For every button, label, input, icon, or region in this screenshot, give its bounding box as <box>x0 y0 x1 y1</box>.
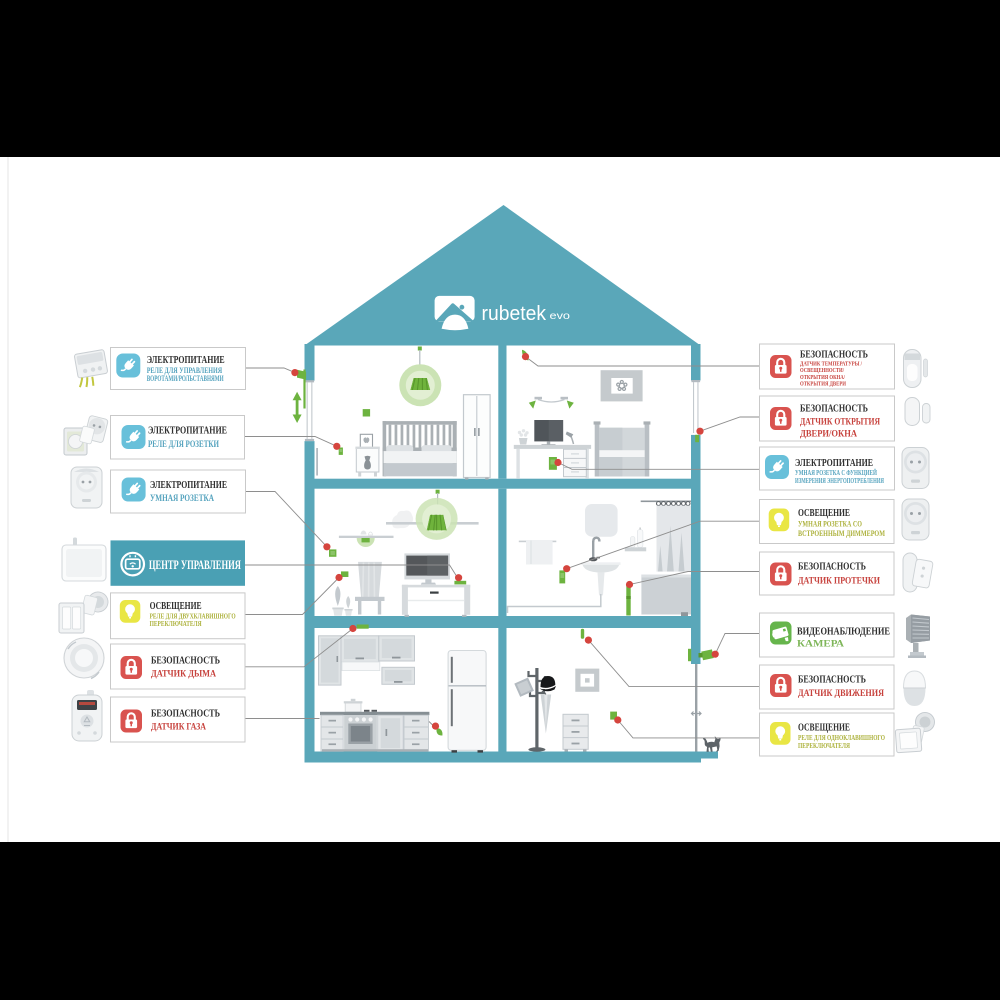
svg-text:rubetek: rubetek <box>482 303 547 325</box>
svg-text:ПЕРЕКЛЮЧАТЕЛЯ: ПЕРЕКЛЮЧАТЕЛЯ <box>798 741 850 750</box>
svg-text:УМНАЯ РОЗЕТКА СО: УМНАЯ РОЗЕТКА СО <box>798 520 862 529</box>
svg-text:БЕЗОПАСНОСТЬ: БЕЗОПАСНОСТЬ <box>798 562 866 573</box>
svg-text:КАМЕРА: КАМЕРА <box>797 639 844 650</box>
svg-text:ОТКРЫТИЯ ДВЕРИ: ОТКРЫТИЯ ДВЕРИ <box>800 381 846 388</box>
svg-text:БЕЗОПАСНОСТЬ: БЕЗОПАСНОСТЬ <box>151 656 220 667</box>
svg-text:ДАТЧИК ГАЗА: ДАТЧИК ГАЗА <box>151 723 206 733</box>
svg-text:ВИДЕОНАБЛЮДЕНИЕ: ВИДЕОНАБЛЮДЕНИЕ <box>797 627 890 638</box>
svg-text:РЕЛЕ ДЛЯ РОЗЕТКИ: РЕЛЕ ДЛЯ РОЗЕТКИ <box>148 440 219 450</box>
svg-text:ИЗМЕРЕНИЯ ЭНЕРГОПОТРЕБЛЕНИЯ: ИЗМЕРЕНИЯ ЭНЕРГОПОТРЕБЛЕНИЯ <box>795 477 884 485</box>
svg-text:ВОРОТАМИ/РОЛЬСТАВНЯМИ: ВОРОТАМИ/РОЛЬСТАВНЯМИ <box>147 374 224 383</box>
svg-text:БЕЗОПАСНОСТЬ: БЕЗОПАСНОСТЬ <box>151 709 220 720</box>
svg-text:ЭЛЕКТРОПИТАНИЕ: ЭЛЕКТРОПИТАНИЕ <box>148 426 227 437</box>
svg-text:БЕЗОПАСНОСТЬ: БЕЗОПАСНОСТЬ <box>800 350 868 361</box>
svg-text:УМНАЯ РОЗЕТКА С ФУНКЦИЕЙ: УМНАЯ РОЗЕТКА С ФУНКЦИЕЙ <box>795 469 877 477</box>
svg-text:ДАТЧИК ДВИЖЕНИЯ: ДАТЧИК ДВИЖЕНИЯ <box>798 688 884 699</box>
svg-text:ЭЛЕКТРОПИТАНИЕ: ЭЛЕКТРОПИТАНИЕ <box>795 458 873 469</box>
svg-text:ОСВЕЩЕНИЕ: ОСВЕЩЕНИЕ <box>798 723 850 734</box>
svg-text:ОСВЕЩЕНИЕ: ОСВЕЩЕНИЕ <box>798 508 850 519</box>
svg-text:ДАТЧИК ДЫМА: ДАТЧИК ДЫМА <box>151 670 216 680</box>
svg-text:ДВЕРИ/ОКНА: ДВЕРИ/ОКНА <box>800 429 857 440</box>
svg-text:УМНАЯ РОЗЕТКА: УМНАЯ РОЗЕТКА <box>150 494 214 504</box>
svg-text:ДАТЧИК ОТКРЫТИЯ: ДАТЧИК ОТКРЫТИЯ <box>800 417 880 428</box>
svg-text:ПЕРЕКЛЮЧАТЕЛЯ: ПЕРЕКЛЮЧАТЕЛЯ <box>150 619 202 628</box>
svg-text:ВСТРОЕННЫМ ДИММЕРОМ: ВСТРОЕННЫМ ДИММЕРОМ <box>798 529 885 538</box>
svg-text:БЕЗОПАСНОСТЬ: БЕЗОПАСНОСТЬ <box>798 675 866 686</box>
svg-text:БЕЗОПАСНОСТЬ: БЕЗОПАСНОСТЬ <box>800 404 868 415</box>
svg-text:ЭЛЕКТРОПИТАНИЕ: ЭЛЕКТРОПИТАНИЕ <box>150 480 227 491</box>
svg-text:ЦЕНТР УПРАВЛЕНИЯ: ЦЕНТР УПРАВЛЕНИЯ <box>149 558 241 572</box>
svg-text:ДАТЧИК ПРОТЕЧКИ: ДАТЧИК ПРОТЕЧКИ <box>798 576 880 587</box>
svg-text:ЭЛЕКТРОПИТАНИЕ: ЭЛЕКТРОПИТАНИЕ <box>147 355 225 366</box>
svg-text:evo: evo <box>550 310 571 322</box>
